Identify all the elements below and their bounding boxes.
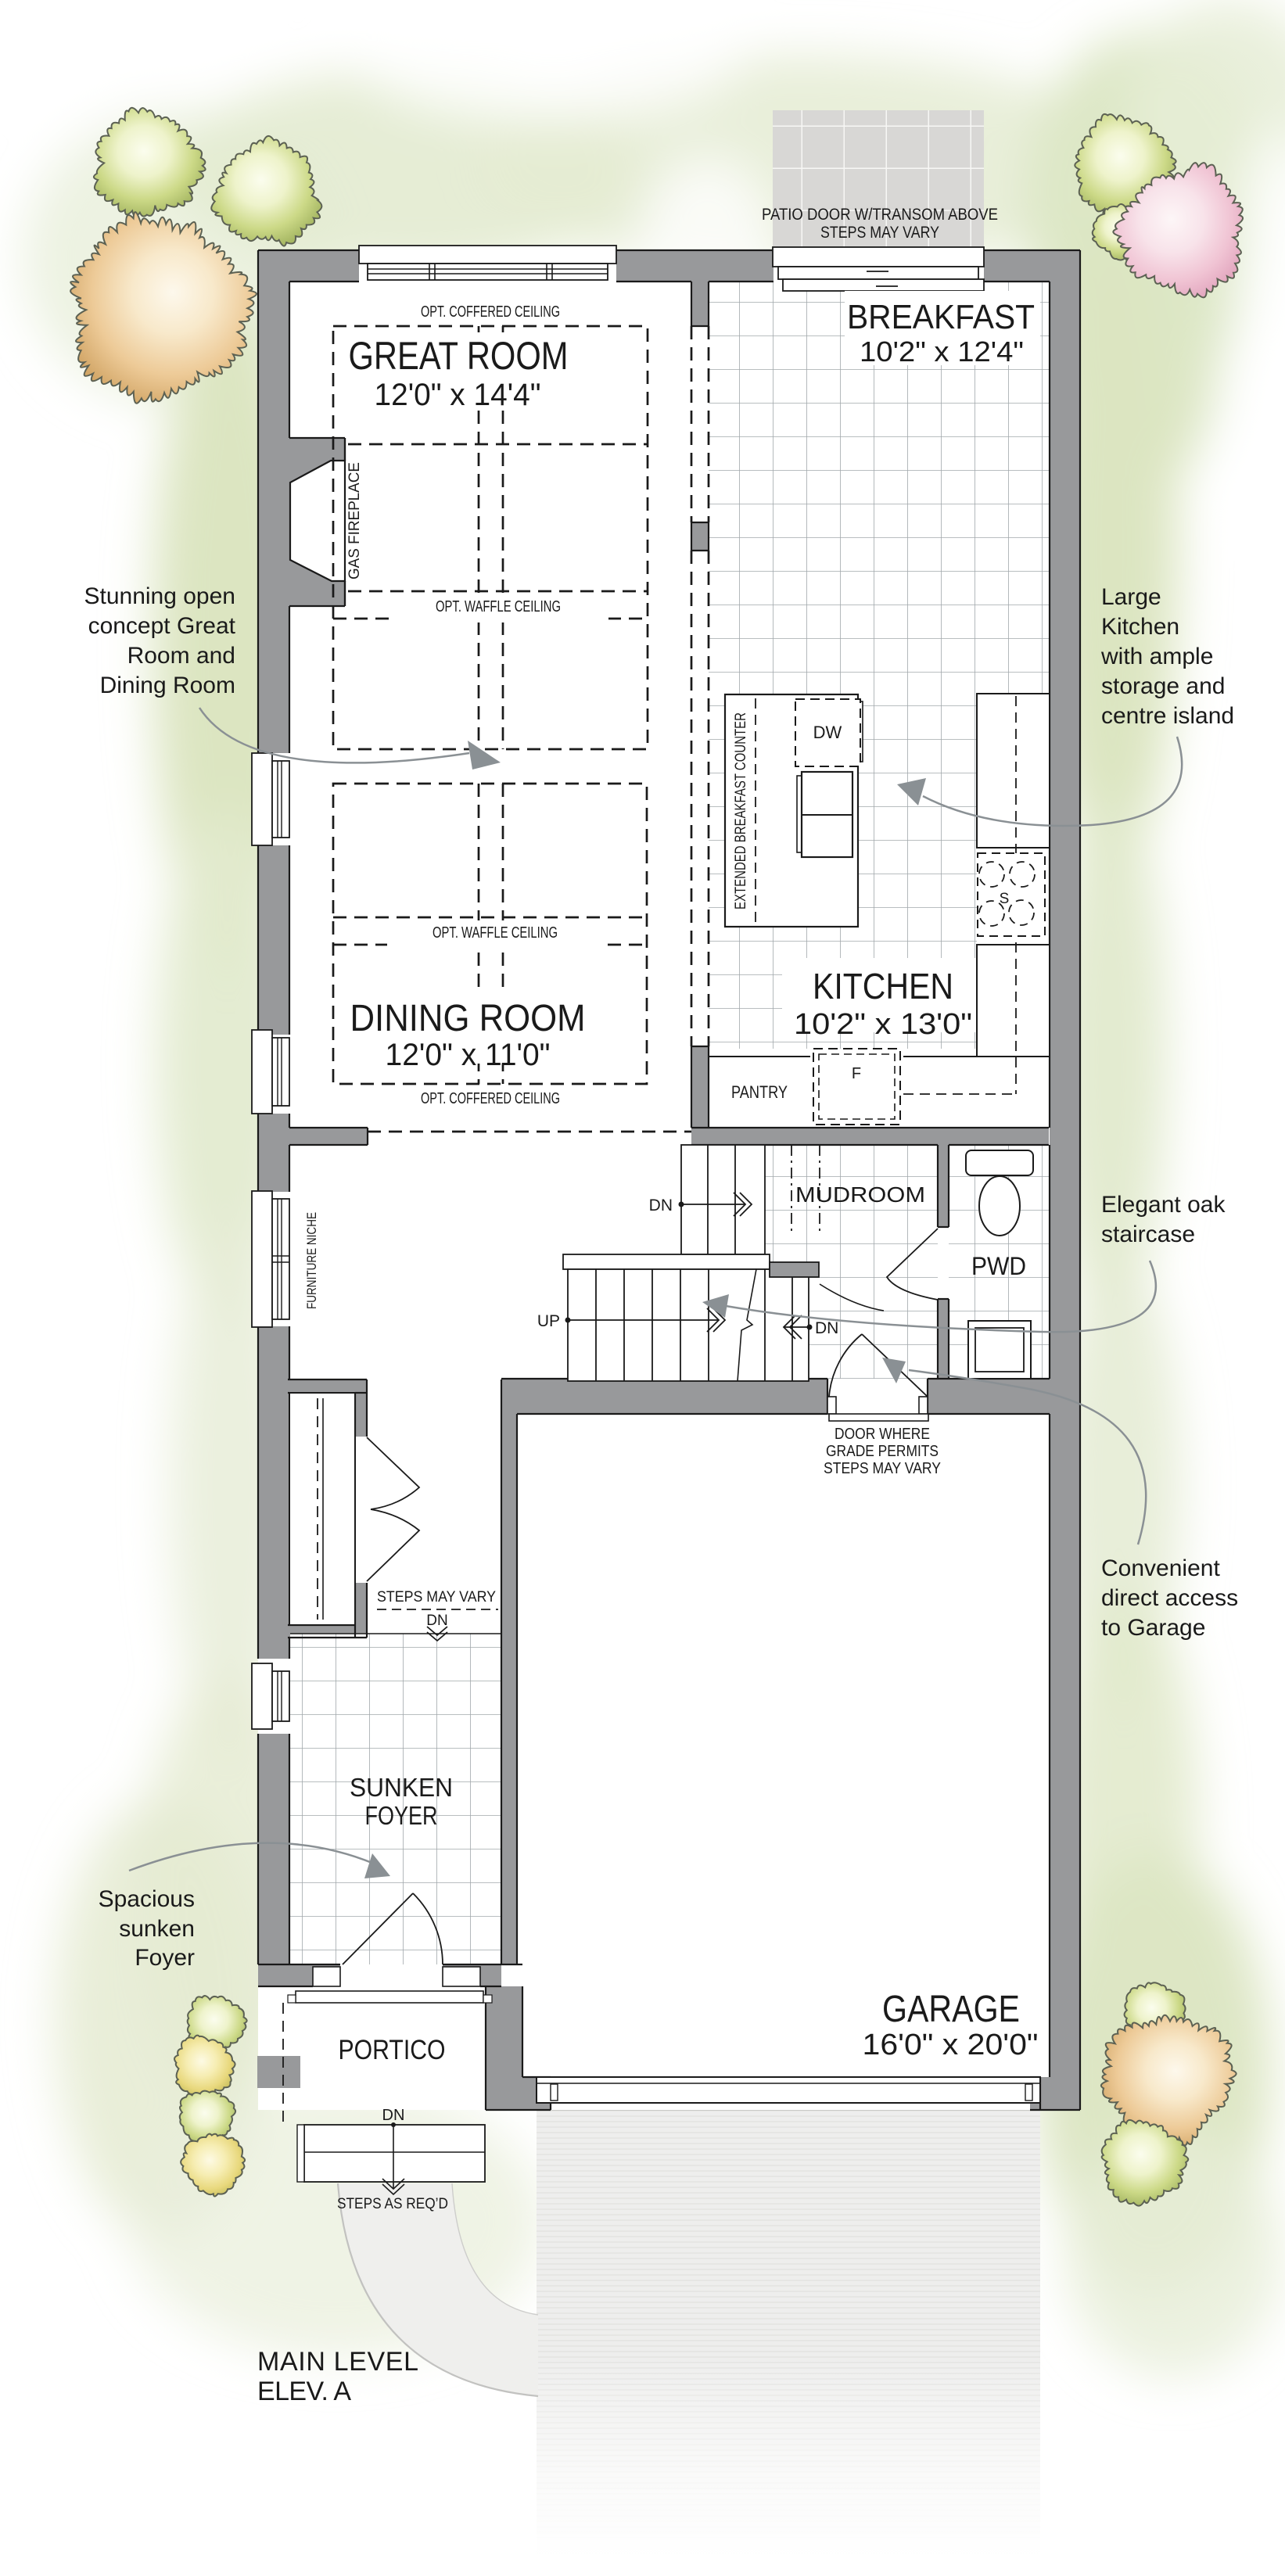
svg-text:storage and: storage and [1101, 673, 1225, 699]
svg-text:Dining Room: Dining Room [100, 673, 235, 698]
svg-text:OPT. COFFERED CEILING: OPT. COFFERED CEILING [421, 1090, 560, 1107]
svg-text:centre island: centre island [1101, 703, 1234, 729]
svg-text:F: F [852, 1065, 861, 1082]
svg-text:SUNKEN: SUNKEN [350, 1773, 453, 1802]
svg-text:DINING ROOM: DINING ROOM [350, 998, 586, 1039]
svg-text:DW: DW [813, 723, 842, 742]
svg-text:PORTICO: PORTICO [339, 2035, 446, 2065]
svg-text:Kitchen: Kitchen [1101, 614, 1179, 640]
svg-text:EXTENDED BREAKFAST COUNTER: EXTENDED BREAKFAST COUNTER [733, 712, 749, 909]
svg-text:staircase: staircase [1101, 1222, 1195, 1247]
svg-text:Foyer: Foyer [135, 1945, 195, 1971]
svg-text:PWD: PWD [971, 1252, 1026, 1280]
svg-text:Room and: Room and [127, 643, 235, 669]
svg-text:concept Great: concept Great [88, 613, 236, 639]
svg-text:direct access: direct access [1101, 1585, 1238, 1611]
svg-text:KITCHEN: KITCHEN [813, 966, 953, 1006]
svg-text:STEPS MAY VARY: STEPS MAY VARY [820, 224, 939, 242]
svg-text:DN: DN [382, 2107, 405, 2124]
svg-text:FOYER: FOYER [365, 1801, 438, 1830]
svg-text:ELEV. A: ELEV. A [257, 2377, 351, 2406]
svg-text:PATIO DOOR W/TRANSOM ABOVE: PATIO DOOR W/TRANSOM ABOVE [762, 206, 998, 224]
svg-text:MAIN LEVEL: MAIN LEVEL [257, 2347, 418, 2377]
svg-text:12'0" x 14'4": 12'0" x 14'4" [375, 378, 541, 412]
svg-text:STEPS MAY VARY: STEPS MAY VARY [377, 1589, 496, 1606]
svg-text:GREAT ROOM: GREAT ROOM [349, 334, 569, 378]
svg-text:12'0" x 11'0": 12'0" x 11'0" [386, 1038, 551, 1072]
svg-text:BREAKFAST: BREAKFAST [847, 298, 1035, 336]
svg-text:STEPS MAY VARY: STEPS MAY VARY [824, 1460, 941, 1477]
svg-text:Elegant oak: Elegant oak [1101, 1192, 1226, 1218]
svg-text:GRADE PERMITS: GRADE PERMITS [826, 1443, 939, 1460]
svg-text:OPT. WAFFLE CEILING: OPT. WAFFLE CEILING [433, 924, 558, 942]
svg-text:DOOR WHERE: DOOR WHERE [835, 1426, 930, 1443]
svg-text:to Garage: to Garage [1101, 1615, 1205, 1641]
svg-text:10'2" x 12'4": 10'2" x 12'4" [860, 335, 1024, 368]
svg-text:Spacious: Spacious [99, 1886, 195, 1912]
svg-text:FURNITURE NICHE: FURNITURE NICHE [304, 1212, 319, 1309]
svg-text:PANTRY: PANTRY [731, 1082, 788, 1102]
svg-text:MUDROOM: MUDROOM [795, 1182, 925, 1207]
svg-text:UP: UP [537, 1312, 560, 1330]
svg-text:10'2" x 13'0": 10'2" x 13'0" [794, 1008, 972, 1041]
svg-text:GARAGE: GARAGE [882, 1989, 1020, 2030]
svg-text:STEPS AS REQ’D: STEPS AS REQ’D [337, 2196, 448, 2212]
svg-text:DN: DN [815, 1319, 838, 1337]
svg-text:sunken: sunken [119, 1916, 195, 1942]
svg-text:with ample: with ample [1100, 644, 1213, 669]
svg-text:GAS FIREPLACE: GAS FIREPLACE [346, 462, 363, 579]
svg-text:DN: DN [426, 1613, 447, 1629]
svg-text:OPT. WAFFLE CEILING: OPT. WAFFLE CEILING [436, 598, 561, 615]
svg-text:OPT. COFFERED CEILING: OPT. COFFERED CEILING [421, 303, 560, 321]
svg-text:Stunning open: Stunning open [84, 583, 235, 609]
svg-text:Convenient: Convenient [1101, 1555, 1220, 1581]
svg-text:DN: DN [649, 1197, 673, 1214]
svg-text:Large: Large [1101, 584, 1161, 610]
svg-text:S: S [1000, 891, 1010, 907]
svg-text:16'0" x 20'0": 16'0" x 20'0" [863, 2029, 1039, 2061]
